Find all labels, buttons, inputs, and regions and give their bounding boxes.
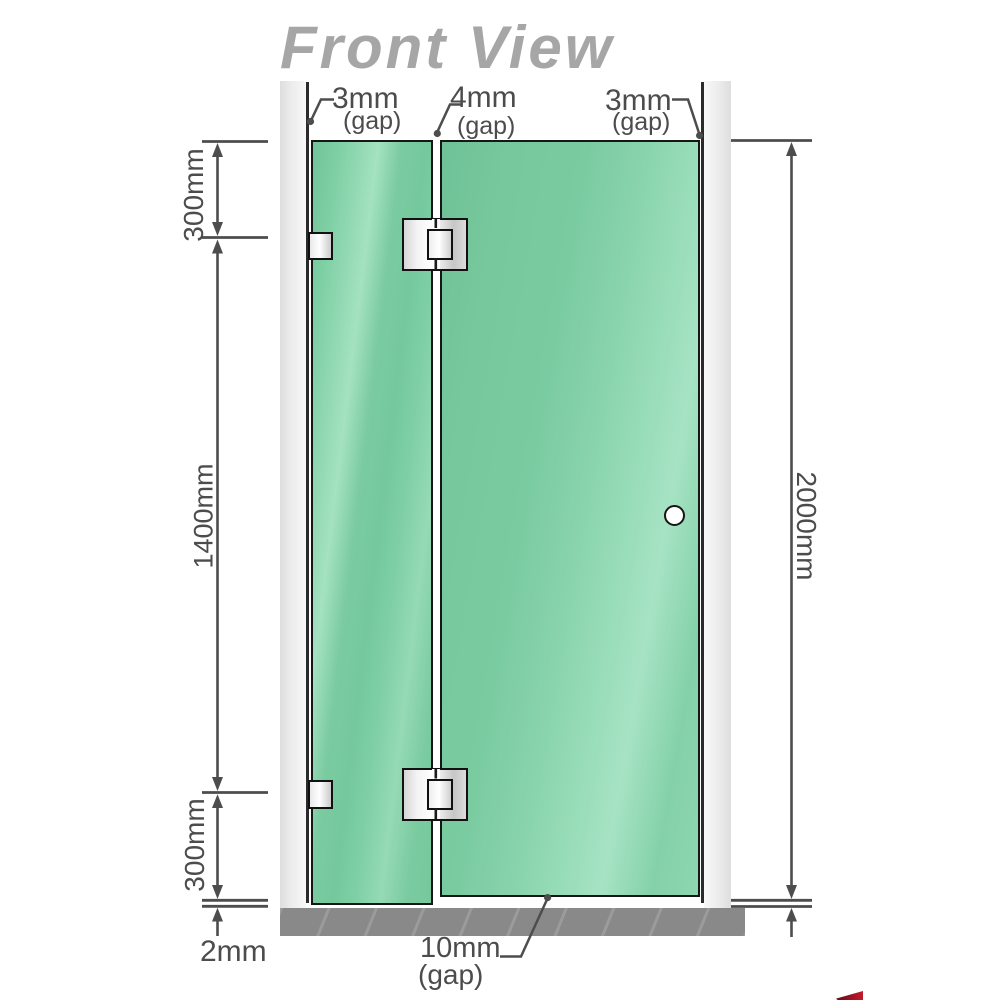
label-top-left-gap-sub: (gap) <box>343 109 401 134</box>
floor-base <box>280 908 745 936</box>
door-glass-panel <box>440 140 700 897</box>
shower-screen-front-view-diagram: Front View <box>0 0 1000 1000</box>
top-hinge <box>402 218 468 271</box>
label-right-2000mm: 2000mm <box>792 472 820 581</box>
bottom-hinge <box>402 768 468 821</box>
label-top-middle-gap-sub: (gap) <box>457 114 515 139</box>
label-left-bottom-300mm: 300mm <box>181 798 209 891</box>
left-wall-channel <box>280 81 306 908</box>
bottom-hinge-tab <box>427 779 453 810</box>
right-wall-channel <box>704 81 731 908</box>
page-title: Front View <box>280 18 614 78</box>
bottom-wall-bracket <box>308 780 333 809</box>
top-hinge-tab <box>427 229 453 260</box>
right-wall-edge-line <box>701 82 704 903</box>
label-bottom-2mm: 2mm <box>200 937 267 967</box>
label-bottom-10mm-sub: (gap) <box>418 961 483 989</box>
top-wall-bracket <box>308 232 333 260</box>
label-left-top-300mm: 300mm <box>180 148 208 241</box>
label-top-middle-gap-value: 4mm <box>450 83 517 113</box>
label-top-right-gap-sub: (gap) <box>612 110 670 135</box>
logo-fragment <box>836 991 863 1000</box>
door-handle-knob <box>664 505 685 526</box>
label-left-middle-1400mm: 1400mm <box>191 463 218 568</box>
